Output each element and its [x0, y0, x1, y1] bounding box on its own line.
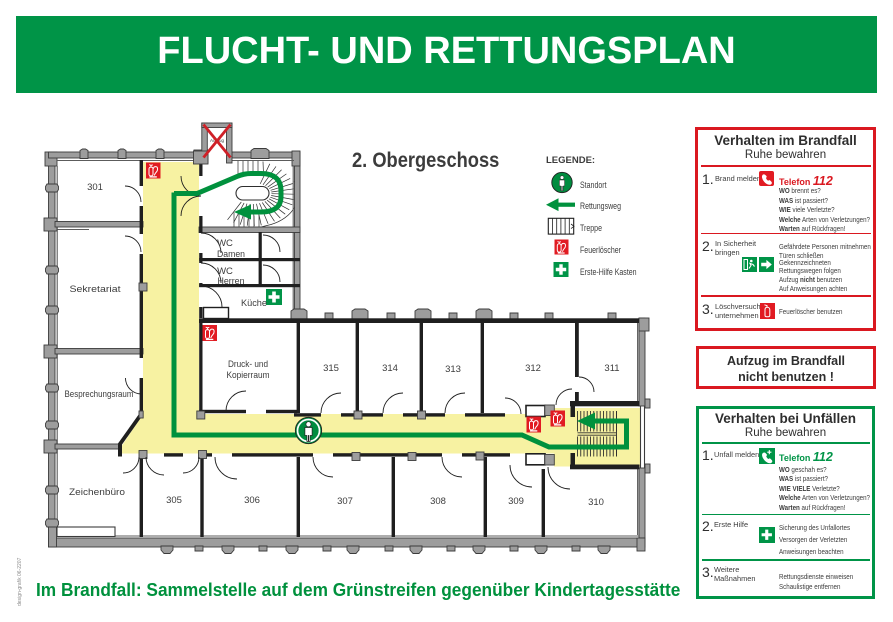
svg-text:306: 306	[244, 495, 260, 506]
svg-text:305: 305	[166, 495, 182, 506]
svg-text:301: 301	[87, 182, 103, 193]
svg-text:311: 311	[604, 363, 619, 374]
svg-text:Besprechungsraum: Besprechungsraum	[65, 389, 134, 400]
svg-text:Damen: Damen	[217, 249, 245, 260]
svg-text:WC: WC	[217, 238, 233, 249]
svg-text:Kopierraum: Kopierraum	[227, 370, 270, 381]
svg-text:315: 315	[323, 363, 339, 374]
svg-text:314: 314	[382, 363, 398, 374]
svg-text:Küche: Küche	[241, 298, 267, 309]
svg-text:307: 307	[337, 496, 353, 507]
svg-text:Zeichenbüro: Zeichenbüro	[69, 487, 125, 498]
svg-text:309: 309	[508, 496, 524, 507]
svg-text:310: 310	[588, 497, 604, 508]
svg-text:313: 313	[445, 364, 461, 375]
svg-text:308: 308	[430, 496, 446, 507]
svg-text:Sekretariat: Sekretariat	[70, 284, 121, 295]
svg-text:Druck- und: Druck- und	[228, 359, 268, 370]
svg-text:312: 312	[525, 363, 541, 374]
svg-text:Herren: Herren	[218, 276, 245, 287]
